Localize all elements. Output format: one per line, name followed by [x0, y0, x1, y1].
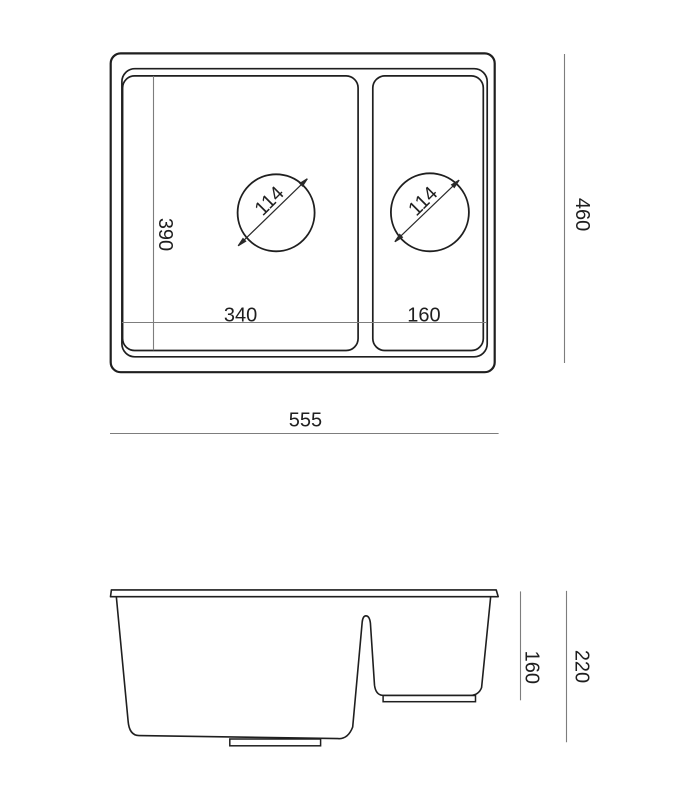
svg-text:390: 390: [154, 218, 176, 251]
svg-text:160: 160: [520, 651, 542, 684]
svg-text:340: 340: [224, 305, 257, 327]
svg-text:555: 555: [289, 409, 322, 431]
svg-text:220: 220: [571, 650, 593, 683]
svg-text:160: 160: [407, 305, 440, 327]
svg-text:460: 460: [571, 198, 593, 231]
